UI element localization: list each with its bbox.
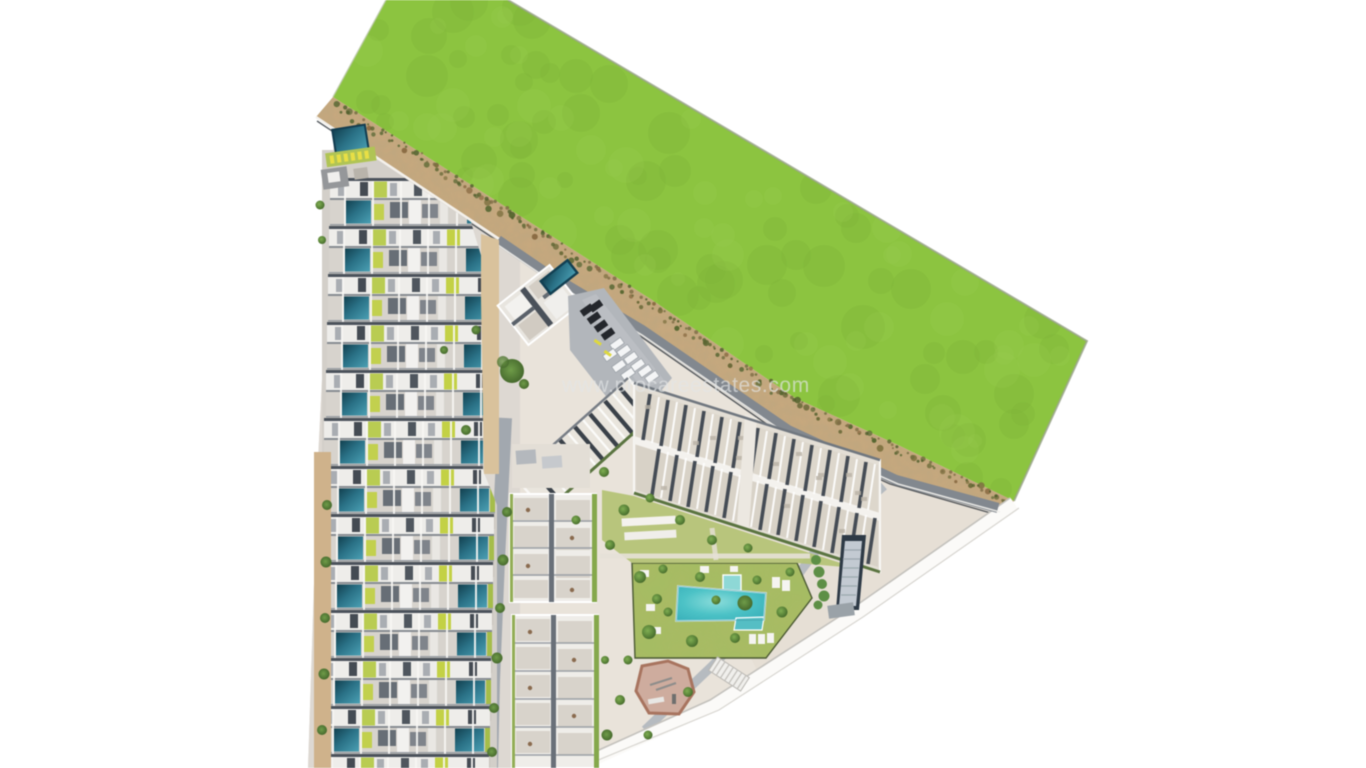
svg-text:www.procareestates.com: www.procareestates.com [561, 374, 810, 397]
